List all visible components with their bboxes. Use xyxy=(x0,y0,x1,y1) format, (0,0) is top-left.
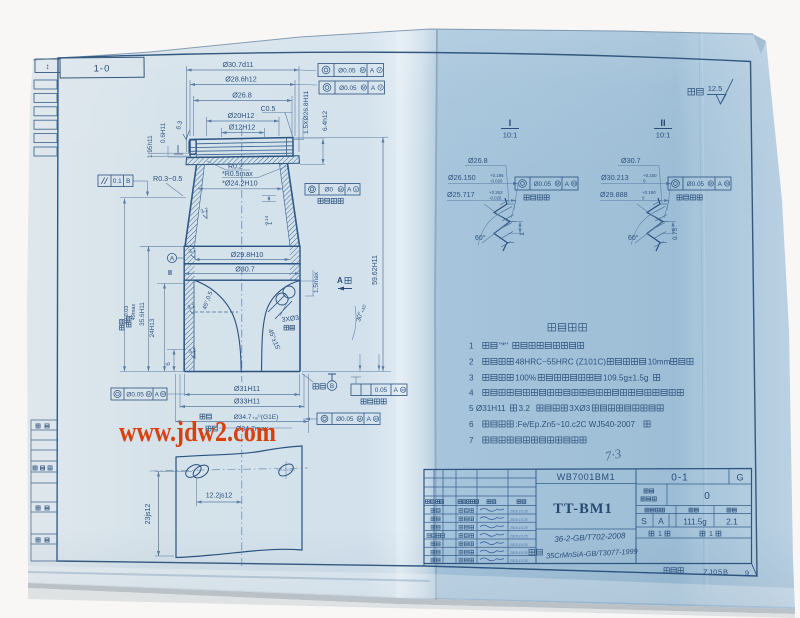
svg-text:Ø0: Ø0 xyxy=(325,187,334,194)
svg-text:B: B xyxy=(126,178,130,185)
svg-text:A: A xyxy=(347,187,352,194)
svg-text:S: S xyxy=(641,516,647,526)
svg-text:1: 1 xyxy=(469,342,474,351)
svg-text:Ø30.7: Ø30.7 xyxy=(235,265,255,274)
svg-text:0-1: 0-1 xyxy=(671,473,688,484)
svg-text:60°: 60° xyxy=(475,234,486,242)
svg-text:M: M xyxy=(709,181,713,186)
svg-text:+0.196: +0.196 xyxy=(490,173,504,178)
svg-text:Ø0.05: Ø0.05 xyxy=(339,85,357,92)
svg-text:Ø0.05: Ø0.05 xyxy=(687,181,705,188)
svg-text:23js12: 23js12 xyxy=(145,504,152,525)
svg-text:M: M xyxy=(147,392,151,397)
svg-text:12.2js12: 12.2js12 xyxy=(206,493,233,500)
svg-text::Fe/Ep.Zn5~10.c2C WJ540-2007: :Fe/Ep.Zn5~10.c2C WJ540-2007 xyxy=(515,420,635,429)
svg-text:M: M xyxy=(572,181,576,186)
svg-text:A: A xyxy=(371,85,376,92)
svg-text:A: A xyxy=(337,276,343,285)
svg-text:A: A xyxy=(394,387,399,394)
svg-text:100%: 100% xyxy=(515,374,536,383)
svg-text:↕: ↕ xyxy=(46,62,50,71)
svg-text:3: 3 xyxy=(469,374,474,383)
svg-text:+0.190: +0.190 xyxy=(642,190,656,195)
svg-text:M: M xyxy=(374,416,378,421)
svg-text:1: 1 xyxy=(658,531,662,538)
svg-text:A: A xyxy=(565,181,570,188)
svg-text:Ø31H11: Ø31H11 xyxy=(234,384,260,393)
svg-text:M: M xyxy=(556,181,560,186)
svg-text:C0.5: C0.5 xyxy=(261,106,276,113)
svg-text:10mm: 10mm xyxy=(648,358,671,367)
svg-text:24H13: 24H13 xyxy=(149,318,156,337)
svg-text:2010.10.25: 2010.10.25 xyxy=(509,510,528,514)
svg-text:B: B xyxy=(330,383,334,390)
svg-text:Ø30.7d11: Ø30.7d11 xyxy=(222,60,253,69)
svg-text:Ø26.150: Ø26.150 xyxy=(448,173,476,182)
svg-text:M: M xyxy=(339,187,343,192)
svg-text:3.2: 3.2 xyxy=(519,404,531,413)
svg-text:109.5g±1.5g: 109.5g±1.5g xyxy=(603,374,649,383)
svg-text:Ø28.6h12: Ø28.6h12 xyxy=(225,75,257,84)
svg-text:*Ø24.2H10: *Ø24.2H10 xyxy=(222,179,258,188)
svg-text:M: M xyxy=(161,392,165,397)
svg-text:7: 7 xyxy=(469,436,474,445)
svg-text:10:1: 10:1 xyxy=(503,131,518,140)
svg-text:-0.026: -0.026 xyxy=(489,196,502,201)
svg-text:M: M xyxy=(361,68,365,73)
svg-text:2010.10.25: 2010.10.25 xyxy=(509,551,528,555)
svg-text:+0.150: +0.150 xyxy=(643,173,657,178)
svg-text:1.5max: 1.5max xyxy=(313,271,320,293)
svg-text:V: V xyxy=(378,68,381,73)
svg-text:10:1: 10:1 xyxy=(656,131,671,140)
svg-text:*R0.5max: *R0.5max xyxy=(222,171,253,178)
svg-text:59.62H11: 59.62H11 xyxy=(372,255,379,285)
svg-text:1.95h11: 1.95h11 xyxy=(147,135,154,158)
svg-text:Ø12H12: Ø12H12 xyxy=(229,123,256,132)
svg-text:48HRC~55HRC (Z101C): 48HRC~55HRC (Z101C) xyxy=(515,358,606,367)
svg-text:2010.10.25: 2010.10.25 xyxy=(509,526,528,530)
svg-text:Ø30.7: Ø30.7 xyxy=(621,156,641,165)
svg-text:9: 9 xyxy=(745,569,749,578)
svg-text:Ø0.05: Ø0.05 xyxy=(126,391,144,398)
svg-text:2.1: 2.1 xyxy=(726,517,738,527)
svg-text:6: 6 xyxy=(165,362,172,366)
svg-text:Ø26.8: Ø26.8 xyxy=(468,156,488,165)
svg-text:35.6H11: 35.6H11 xyxy=(139,302,146,326)
svg-text:ZJ05B: ZJ05B xyxy=(703,568,729,577)
svg-text:M: M xyxy=(362,85,366,90)
svg-text:A: A xyxy=(170,256,175,263)
svg-text:0: 0 xyxy=(704,491,710,502)
svg-text:-0.14: -0.14 xyxy=(264,215,269,226)
svg-text:+0.262: +0.262 xyxy=(489,190,503,195)
svg-text:60°: 60° xyxy=(628,234,639,242)
svg-text:5 Ø31H11: 5 Ø31H11 xyxy=(469,404,506,413)
svg-text:49-0.03: 49-0.03 xyxy=(124,306,130,325)
svg-text:2: 2 xyxy=(469,358,474,367)
svg-text:3XØ3: 3XØ3 xyxy=(569,404,590,413)
svg-text:R0.3~0.5: R0.3~0.5 xyxy=(153,174,182,183)
svg-text:www.jdw2.com: www.jdw2.com xyxy=(119,417,276,448)
svg-text:A: A xyxy=(658,516,664,526)
svg-text:WB7001BM1: WB7001BM1 xyxy=(557,472,615,482)
svg-text:G: G xyxy=(736,473,743,483)
svg-text:Ø0.05: Ø0.05 xyxy=(336,416,354,423)
svg-text:Ø29.888: Ø29.888 xyxy=(600,190,628,199)
svg-text:II: II xyxy=(660,118,665,129)
svg-text:-0.026: -0.026 xyxy=(490,179,503,184)
svg-text:Ø25.717: Ø25.717 xyxy=(447,190,475,199)
svg-text:A: A xyxy=(718,181,723,188)
svg-text:12.5: 12.5 xyxy=(708,84,723,93)
svg-text:6.4h12: 6.4h12 xyxy=(322,110,329,131)
svg-text:I: I xyxy=(509,118,512,129)
svg-text:2010.10.25: 2010.10.25 xyxy=(509,518,528,522)
svg-text:0.1: 0.1 xyxy=(113,178,122,185)
svg-text:2010.10.25: 2010.10.25 xyxy=(509,543,528,547)
svg-text:4: 4 xyxy=(469,389,474,398)
svg-text:"*": "*" xyxy=(499,342,508,351)
svg-text:1-0: 1-0 xyxy=(94,64,111,75)
svg-text:1.5XØ26.8H11: 1.5XØ26.8H11 xyxy=(303,91,310,134)
svg-text:Ø20H12: Ø20H12 xyxy=(228,111,255,120)
svg-text:6: 6 xyxy=(469,420,474,429)
svg-text:2010.10.25: 2010.10.25 xyxy=(509,535,528,539)
svg-text:Ø26.8: Ø26.8 xyxy=(232,91,252,100)
svg-text:A: A xyxy=(367,416,372,423)
svg-text:M: M xyxy=(725,181,729,186)
svg-text:49max: 49max xyxy=(131,303,137,320)
svg-text:Ø0.05: Ø0.05 xyxy=(534,181,552,188)
svg-text:V: V xyxy=(379,85,382,90)
svg-text:Ø30.213: Ø30.213 xyxy=(601,173,629,182)
svg-text:A: A xyxy=(370,67,375,74)
svg-text:Ø29.8H10: Ø29.8H10 xyxy=(231,250,264,259)
svg-text:0.05: 0.05 xyxy=(375,387,388,394)
svg-text:II: II xyxy=(168,270,172,277)
svg-text:V: V xyxy=(355,187,358,192)
svg-text:1: 1 xyxy=(709,531,713,538)
svg-text:2010.10.25: 2010.10.25 xyxy=(509,559,528,563)
svg-text:M: M xyxy=(401,387,405,392)
svg-text:Ø0.05: Ø0.05 xyxy=(338,67,356,74)
svg-text:M: M xyxy=(358,416,362,421)
svg-text:0.6H11: 0.6H11 xyxy=(160,122,167,143)
svg-text:R0.2: R0.2 xyxy=(228,164,243,171)
svg-text:Ø33H11: Ø33H11 xyxy=(234,397,260,406)
svg-text:111.5g: 111.5g xyxy=(683,518,706,527)
svg-text:A: A xyxy=(155,391,160,398)
svg-text:TT-BM1: TT-BM1 xyxy=(553,501,612,517)
